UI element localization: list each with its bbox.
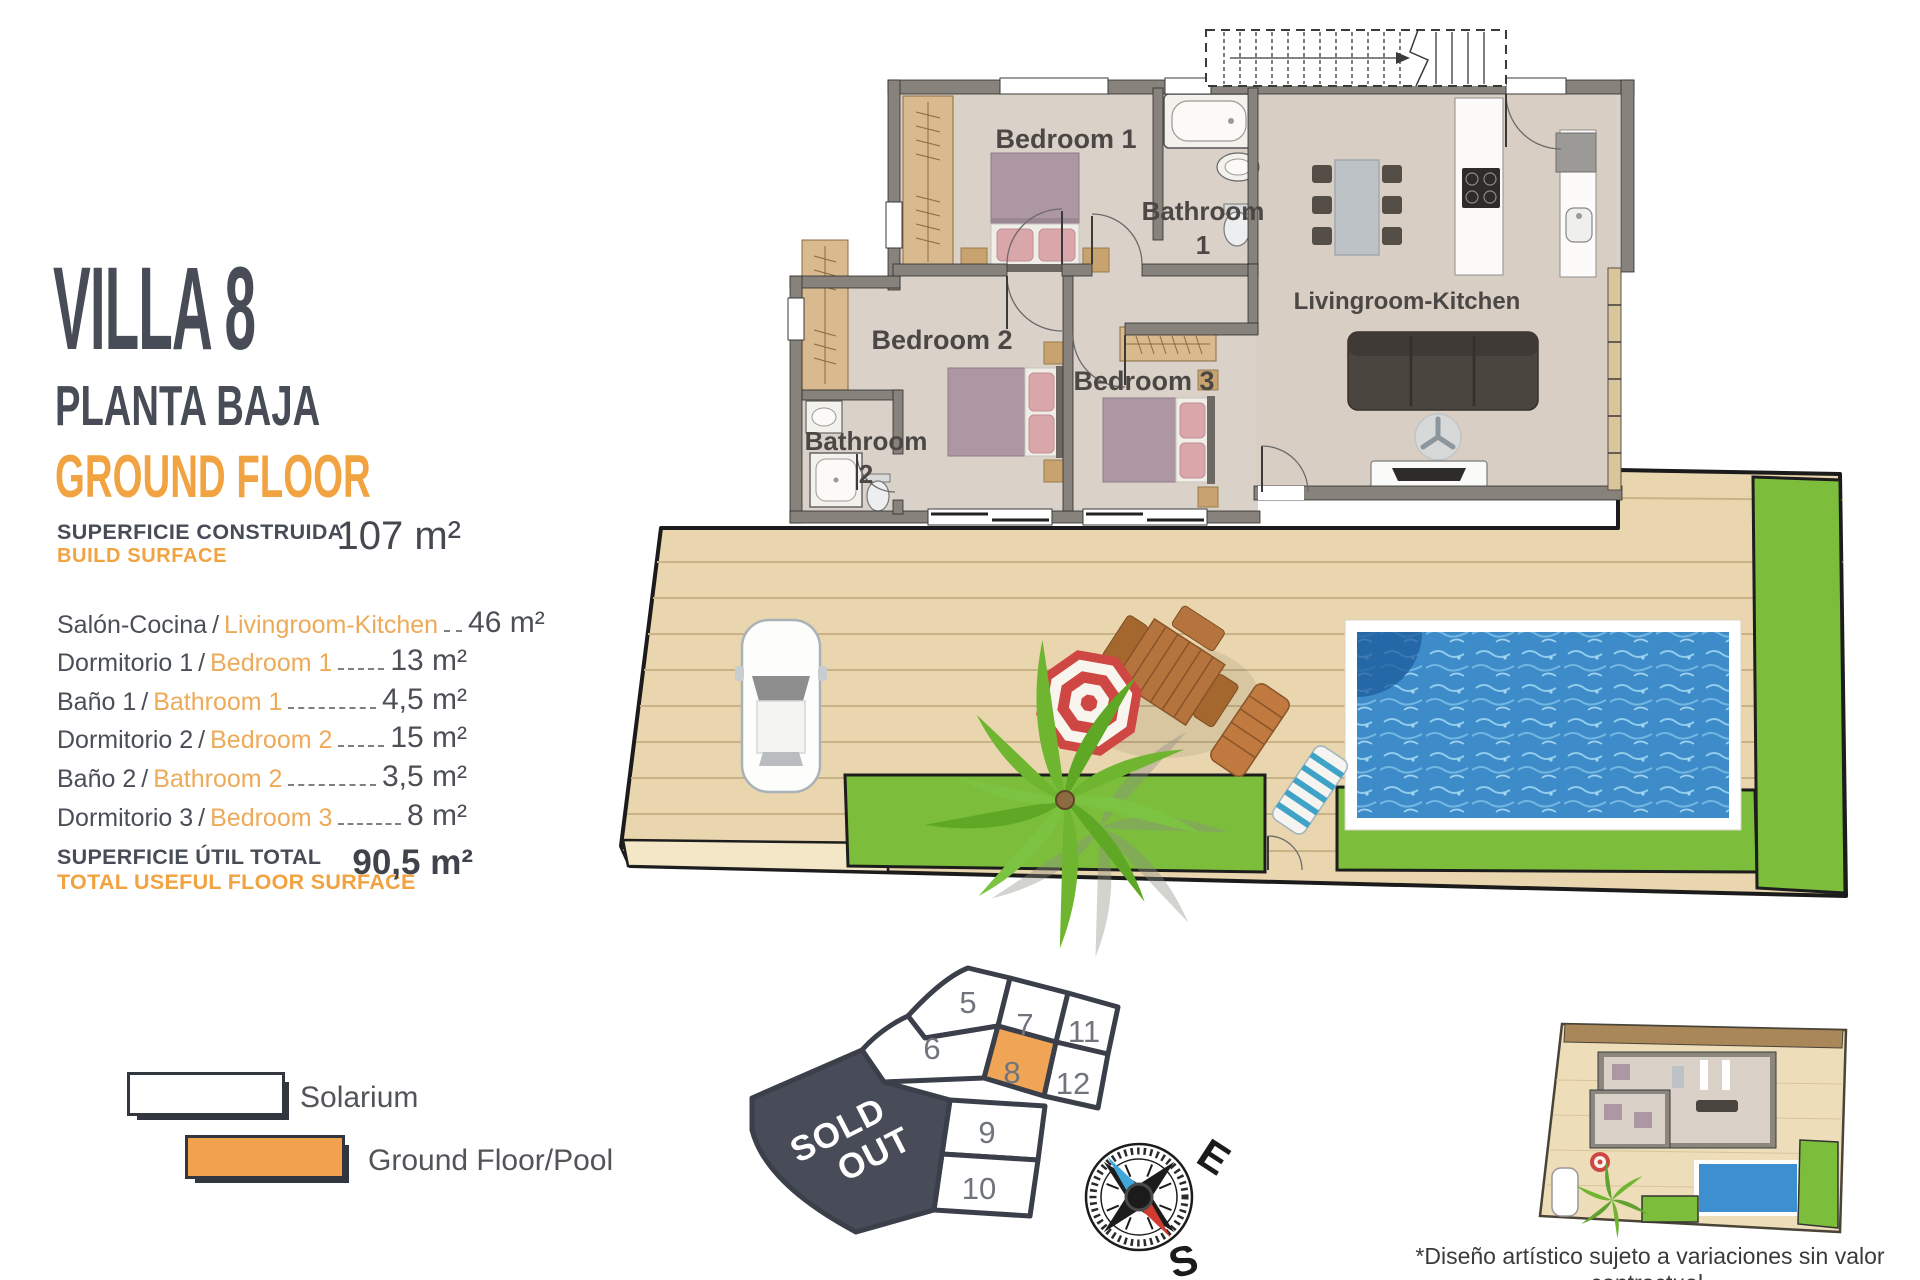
lot-number-10: 10 [962,1171,996,1206]
car [735,620,827,792]
floor-plan-scene: Bedroom 1 Bathroom 1 Livingroom-Kitchen … [0,0,1920,1280]
compass-east-label: E [1189,1130,1238,1185]
lot-number-5: 5 [959,985,976,1020]
tv-unit [1371,461,1487,488]
house: Bedroom 1 Bathroom 1 Livingroom-Kitchen … [788,30,1634,525]
bathtub [1164,94,1254,148]
sliding-glass-doors [1608,268,1621,490]
compass-south-label: S [1164,1235,1203,1280]
sofa [1348,332,1538,410]
label-bathroom2: Bathroom [805,426,928,456]
lot-number-7: 7 [1016,1007,1033,1042]
label-bathroom2-num: 2 [859,459,873,489]
wardrobe-bedroom1 [903,96,953,268]
lot-number-11: 11 [1068,1014,1100,1049]
ceiling-fan [1415,414,1461,460]
brochure-page: VILLA 8 PLANTA BAJA GROUND FLOOR SUPERFI… [0,0,1920,1280]
label-bathroom1-num: 1 [1196,230,1210,260]
label-bedroom3: Bedroom 3 [1073,366,1214,396]
shower [810,453,862,507]
wardrobe-bedroom2 [802,240,848,390]
lot-number-6: 6 [923,1031,940,1066]
label-bathroom1: Bathroom [1142,196,1265,226]
lot-number-9: 9 [978,1115,995,1150]
swimming-pool [1345,620,1741,830]
label-bedroom1: Bedroom 1 [995,124,1136,154]
label-bedroom2: Bedroom 2 [871,325,1012,355]
stairs [1206,30,1506,86]
villa-overview-thumbnail [1540,1024,1846,1238]
site-map: SOLD OUT 5 7 11 6 8 12 9 10 [752,968,1118,1232]
lot-number-12: 12 [1056,1066,1090,1101]
lot-number-8: 8 [1003,1055,1020,1090]
label-living: Livingroom-Kitchen [1294,288,1521,315]
compass-rose: E S [1068,1126,1238,1280]
lawn-right-strip [1753,477,1845,893]
dining-table [1312,160,1402,255]
